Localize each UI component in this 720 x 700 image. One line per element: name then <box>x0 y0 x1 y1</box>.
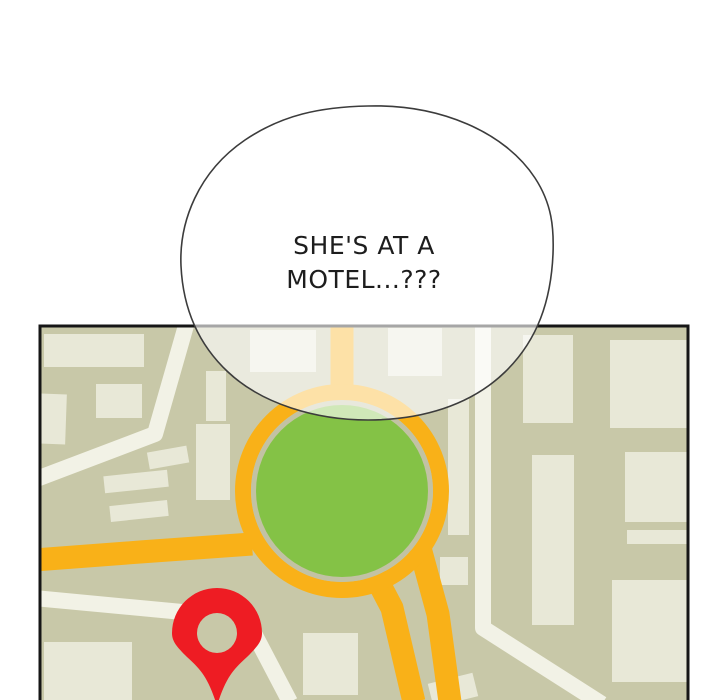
pin-hole <box>197 613 237 653</box>
speech-bubble <box>181 106 553 420</box>
roundabout <box>243 392 441 590</box>
map-scene <box>0 0 720 700</box>
comic-panel: SHE'S AT A MOTEL...??? <box>0 0 720 700</box>
roundabout-park <box>256 405 428 577</box>
